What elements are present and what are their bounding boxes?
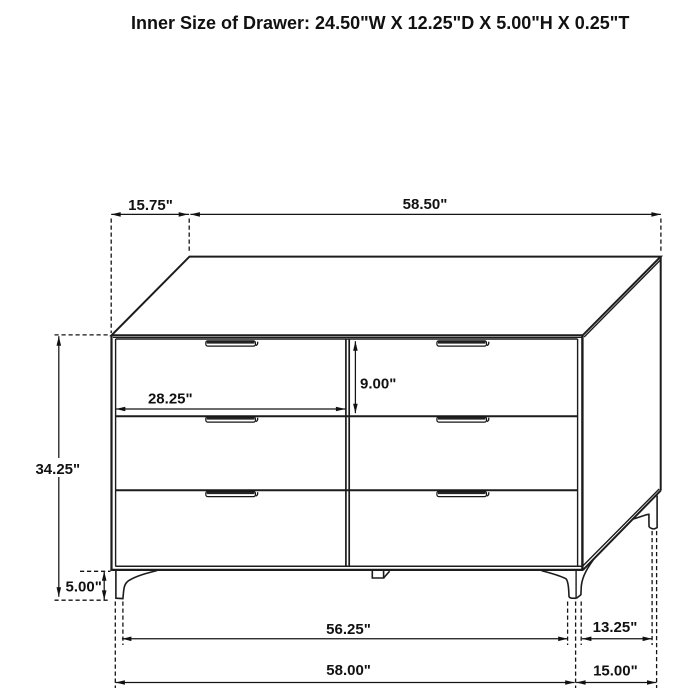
- svg-text:15.00": 15.00": [593, 663, 638, 680]
- svg-text:58.50": 58.50": [403, 196, 448, 213]
- svg-text:13.25": 13.25": [593, 619, 638, 636]
- svg-text:5.00": 5.00": [66, 579, 102, 596]
- svg-text:28.25": 28.25": [148, 391, 193, 408]
- svg-text:Inner Size of Drawer: 24.50"W: Inner Size of Drawer: 24.50"W X 12.25"D …: [131, 13, 629, 33]
- svg-text:56.25": 56.25": [326, 621, 371, 638]
- svg-text:15.75": 15.75": [128, 197, 173, 214]
- svg-text:34.25": 34.25": [35, 461, 80, 478]
- svg-text:9.00": 9.00": [360, 375, 396, 392]
- svg-text:58.00": 58.00": [326, 662, 371, 679]
